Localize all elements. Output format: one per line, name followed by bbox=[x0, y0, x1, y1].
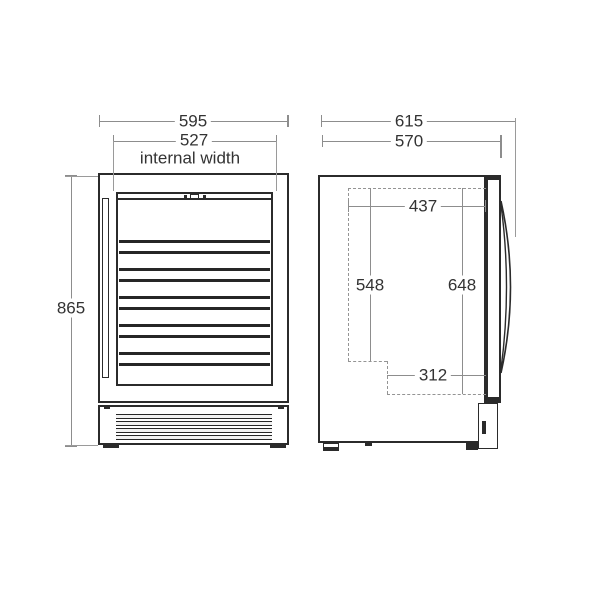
temperature-display-icon bbox=[190, 194, 199, 200]
dimension-diagram: 595 527 internal width 865 bbox=[0, 0, 600, 600]
dim-label-width: 595 bbox=[175, 112, 211, 131]
extension-line bbox=[65, 445, 98, 446]
control-button-right-icon bbox=[203, 195, 206, 199]
dim-label-internal-height-rear: 648 bbox=[444, 276, 480, 295]
dim-label-internal-depth-lower: 312 bbox=[415, 366, 451, 385]
vent-slat bbox=[116, 435, 272, 440]
dim-label-depth-overall: 615 bbox=[391, 112, 427, 131]
cavity-left-dashed bbox=[348, 188, 349, 361]
dim-tick bbox=[322, 135, 324, 147]
side-body-outline bbox=[318, 175, 486, 443]
dim-tick bbox=[348, 200, 349, 212]
vent-slat bbox=[116, 428, 272, 433]
vent-slat bbox=[116, 414, 272, 419]
side-foot-right bbox=[466, 443, 478, 450]
side-foot-left bbox=[323, 443, 339, 451]
dim-label-internal-depth: 437 bbox=[405, 197, 441, 216]
plinth-corner-left bbox=[104, 405, 110, 409]
cavity-top-dashed bbox=[348, 188, 486, 189]
side-lower-panel bbox=[478, 403, 498, 449]
dim-tick bbox=[485, 200, 486, 212]
vent-slat bbox=[116, 421, 272, 426]
side-door-top-hinge bbox=[486, 175, 501, 180]
shelf bbox=[119, 296, 270, 310]
cavity-step-vertical-dashed bbox=[387, 361, 388, 394]
dim-line-internal-height-front bbox=[370, 188, 371, 361]
dim-tick bbox=[321, 115, 323, 127]
control-button-left-icon bbox=[184, 195, 187, 199]
dim-tick bbox=[99, 115, 101, 127]
dim-label-internal-width: 527 bbox=[176, 131, 212, 150]
shelf bbox=[119, 268, 270, 282]
front-foot-right bbox=[270, 443, 286, 448]
shelf bbox=[119, 352, 270, 366]
side-handle-arc bbox=[497, 195, 520, 379]
cavity-bottom-dashed bbox=[387, 394, 486, 395]
front-foot-left bbox=[103, 443, 119, 448]
dim-label-depth-body: 570 bbox=[391, 132, 427, 151]
side-bottom-mark bbox=[365, 443, 372, 446]
dim-label-internal-height-front: 548 bbox=[352, 276, 388, 295]
side-lower-panel-vent bbox=[482, 421, 486, 434]
dim-tick bbox=[500, 135, 502, 158]
extension-line bbox=[276, 141, 277, 191]
front-door-handle bbox=[102, 198, 109, 378]
dim-tick bbox=[287, 115, 289, 127]
shelf bbox=[119, 240, 270, 254]
extension-line-handle bbox=[515, 118, 516, 237]
dim-label-internal-width-text: internal width bbox=[136, 149, 244, 168]
shelf bbox=[119, 324, 270, 338]
plinth-corner-right bbox=[278, 405, 284, 409]
dim-label-height: 865 bbox=[53, 299, 89, 318]
extension-line bbox=[113, 141, 114, 191]
extension-line bbox=[65, 176, 98, 177]
cavity-step-horizontal-dashed bbox=[348, 361, 387, 362]
